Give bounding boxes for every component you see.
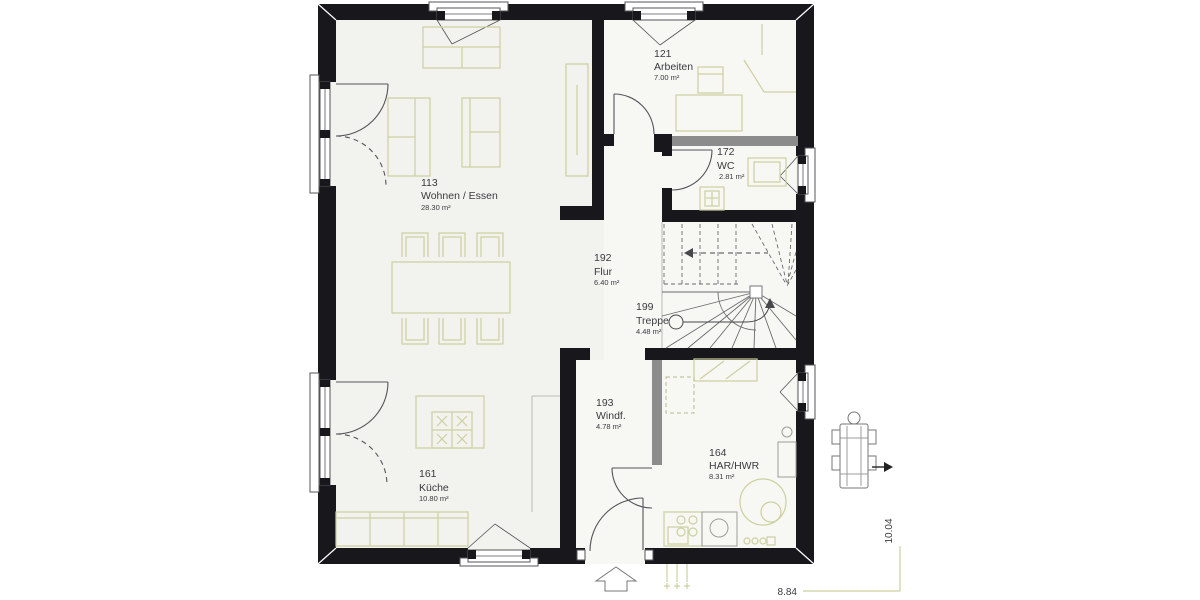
room-name: Treppe (636, 315, 669, 327)
dimension-lines (803, 546, 900, 591)
room-area: 28.30 m² (421, 203, 451, 212)
room-area: 10.80 m² (419, 494, 449, 503)
room-number: 192 (594, 252, 612, 264)
room-name: Arbeiten (654, 61, 693, 73)
room-name: Flur (594, 266, 613, 278)
room-area: 4.48 m² (636, 327, 662, 336)
room-area: 6.40 m² (594, 278, 620, 287)
floor-plan-page: 113 Wohnen / Essen 28.30 m² 121 Arbeiten… (0, 0, 1200, 600)
dimension-width-label: 8.84 (778, 587, 798, 598)
entrance-arrow (596, 567, 636, 591)
room-name: Küche (419, 482, 449, 494)
room-number: 164 (709, 447, 727, 459)
room-number: 172 (717, 146, 735, 158)
room-area: 8.31 m² (709, 472, 735, 481)
room-number: 113 (421, 177, 438, 189)
dimension-height-label: 10.04 (884, 518, 895, 543)
room-area: 7.00 m² (654, 73, 680, 82)
room-name: WC (717, 160, 735, 172)
room-number: 121 (654, 48, 672, 60)
room-number: 161 (419, 468, 437, 480)
room-name: Wohnen / Essen (421, 190, 498, 202)
room-name: HAR/HWR (709, 460, 760, 472)
room-number: 199 (636, 301, 654, 313)
room-area: 4.78 m² (596, 422, 622, 431)
room-number: 193 (596, 397, 614, 409)
room-name: Windf. (596, 410, 626, 422)
floor-plan-canvas: 113 Wohnen / Essen 28.30 m² 121 Arbeiten… (0, 0, 1200, 600)
room-area: 2.81 m² (719, 172, 745, 181)
heat-pump-unit-icon (832, 412, 893, 488)
